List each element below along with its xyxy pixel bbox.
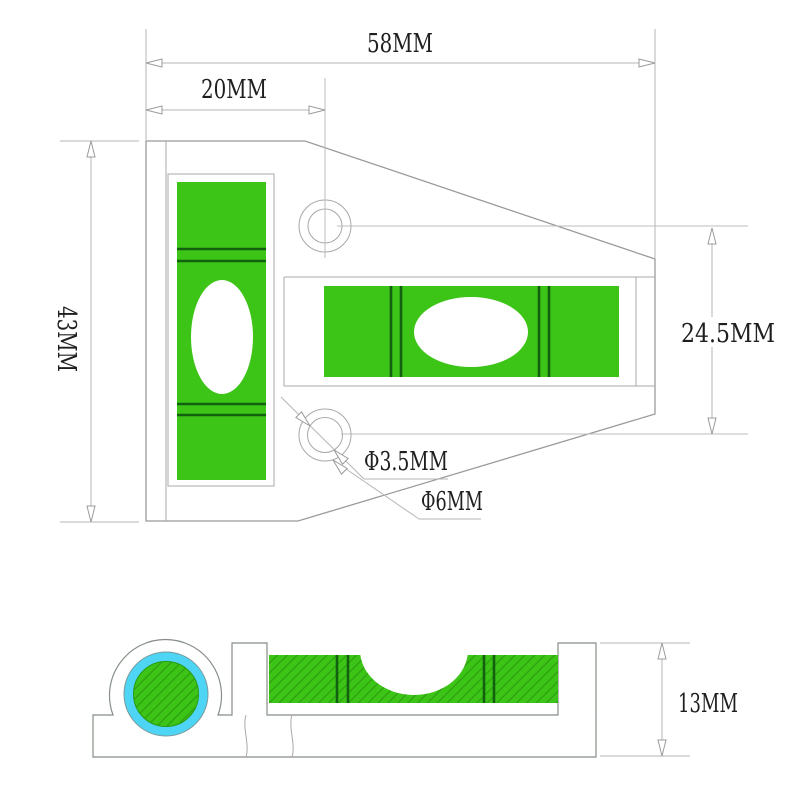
arrow-icon [87,506,95,522]
arrow-icon [658,643,666,659]
dim-label-13mm: 13MM [678,689,738,719]
dimension-hole-inner-diameter: Φ3.5MM [281,397,448,479]
dim-label-58mm: 58MM [367,29,433,59]
dim-label-24-5mm: 24.5MM [681,319,775,349]
dim-label-3-5mm: Φ3.5MM [364,447,448,477]
section-horizontal-vial [269,605,558,703]
arrow-icon [146,106,162,114]
arrow-icon [708,418,716,434]
spirit-level-drawing: 58MM 20MM 43MM 24.5MM Φ3.5MM Φ6MM [0,0,800,800]
arrow-icon [658,740,666,756]
dimension-24-5mm: 24.5MM [680,228,777,434]
arrow-icon [309,106,325,114]
technical-drawing-page: 58MM 20MM 43MM 24.5MM Φ3.5MM Φ6MM [0,0,800,800]
dim-label-43mm: 43MM [51,306,81,372]
section-view: 13MM [93,605,738,757]
arrow-icon [87,141,95,157]
dimension-43mm: 43MM [51,141,139,522]
vertical-vial-bubble [191,280,253,394]
circular-vial-liquid [134,662,199,727]
vertical-vial [177,182,266,480]
arrow-icon [708,228,716,244]
arrow-icon [639,59,655,67]
dim-label-20mm: 20MM [201,75,267,105]
horizontal-vial [324,286,619,377]
dimension-13mm: 13MM [600,643,738,756]
break-line [291,715,293,757]
mounting-hole-top [299,78,748,258]
arrow-icon [146,59,162,67]
break-line [245,715,247,757]
horizontal-vial-bubble [414,297,528,367]
dimension-20mm: 20MM [146,75,325,114]
circular-vial [124,652,208,736]
dim-label-6mm: Φ6MM [421,487,483,517]
section-vial-bubble [360,605,468,695]
